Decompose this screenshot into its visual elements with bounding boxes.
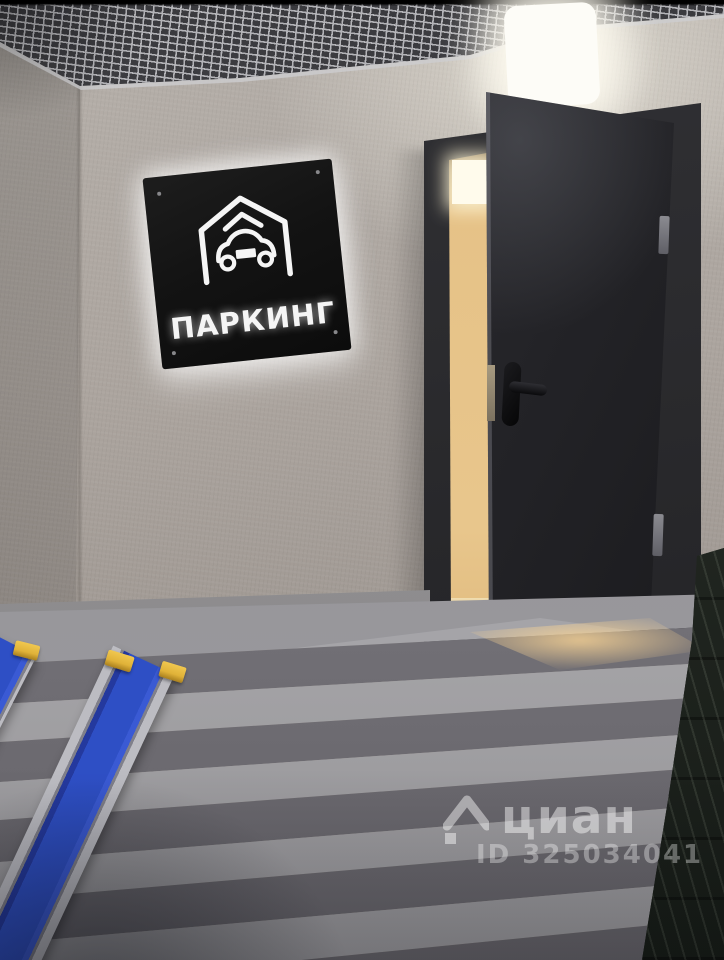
cian-house-logo-icon [443,794,489,846]
watermark-listing-id: ID 325034041 [476,840,703,870]
parking-entrance-photo: ПАРКИНГ циан ID 325034041 [0,0,724,960]
watermark: циан [443,794,637,846]
watermark-brand: циан [501,794,637,841]
